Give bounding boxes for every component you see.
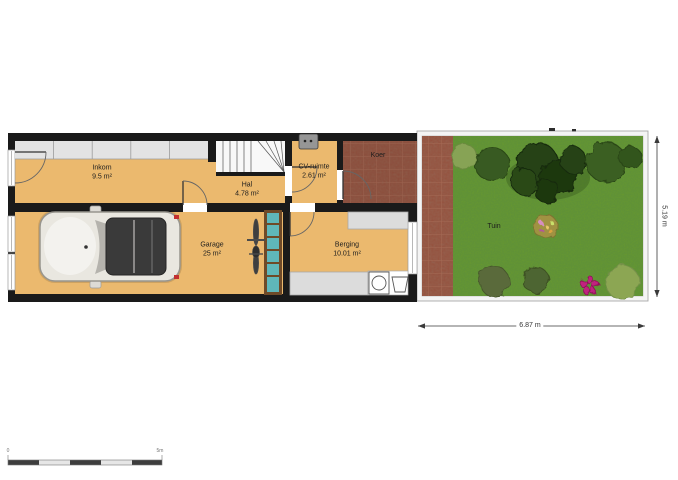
bush-olive-mid [523, 267, 549, 293]
room-name-berging: Berging [333, 242, 361, 251]
bush-olive-left [479, 266, 509, 296]
room-label-garage: Garage 25 m² [200, 242, 223, 259]
dimension-label-depth: 5.19 m [659, 203, 668, 228]
room-name-hal: Hal [235, 182, 259, 191]
room-name-tuin: Tuin [487, 223, 500, 232]
room-label-cv: CV-ruimte 2.61 m² [298, 164, 329, 181]
building [8, 133, 417, 302]
floor-plan-canvas: Inkom 9.5 m² Hal 4.78 m² CV-ruimte 2.61 … [0, 0, 678, 480]
room-label-berging: Berging 10.01 m² [333, 242, 361, 259]
washing-machine-icon [369, 272, 389, 294]
car-mirror-bottom [90, 281, 101, 288]
boiler-unit [299, 134, 318, 149]
fence-mark-2 [572, 129, 576, 131]
scale-label-end: 5m [157, 449, 164, 454]
scale-label-start: 0 [7, 449, 10, 454]
room-name-cv: CV-ruimte [298, 164, 329, 173]
car-taillight-top [174, 215, 179, 219]
room-name-koer: Koer [371, 152, 386, 161]
scale-bar [8, 455, 162, 465]
counter-top [348, 212, 408, 229]
room-name-inkom: Inkom [92, 165, 112, 174]
fence-mark-1 [549, 128, 555, 131]
door-gap-garage [183, 203, 207, 212]
room-label-koer: Koer [371, 152, 386, 161]
car-top-view [38, 206, 182, 288]
room-label-tuin: Tuin [487, 223, 500, 232]
room-area-garage: 25 m² [200, 250, 223, 259]
room-area-hal: 4.78 m² [235, 190, 259, 199]
flower-bed [534, 215, 558, 239]
door-gap-cv [285, 166, 292, 196]
bush-light-bottom-right [605, 265, 639, 299]
window-berging [408, 222, 417, 274]
laundry-basket-icon [392, 277, 408, 292]
door-gap-berging [290, 203, 315, 212]
window-garage-lower [8, 254, 15, 290]
room-area-berging: 10.01 m² [333, 250, 361, 259]
paving-texture [422, 136, 453, 296]
door-gap-koer [337, 170, 343, 200]
window-garage-upper [8, 216, 15, 252]
car-roof-glass [106, 218, 166, 275]
storage-rack [264, 210, 282, 295]
garden-plot [417, 128, 648, 301]
room-area-cv: 2.61 m² [298, 172, 329, 181]
room-name-garage: Garage [200, 242, 223, 251]
staircase [216, 141, 285, 172]
bush-light-top [451, 144, 477, 170]
bush-dark-left [475, 147, 509, 181]
floorplan-svg [0, 0, 678, 480]
room-label-hal: Hal 4.78 m² [235, 182, 259, 199]
koer-shade [343, 141, 417, 203]
dimension-label-width: 6.87 m [516, 322, 543, 331]
car-taillight-bottom [174, 275, 179, 279]
counter-bottom [290, 272, 368, 295]
room-label-inkom: Inkom 9.5 m² [92, 165, 112, 182]
entry-hatch-band [15, 141, 208, 159]
window-front-door [8, 150, 15, 186]
room-area-inkom: 9.5 m² [92, 173, 112, 182]
bush-dark-corner [619, 146, 641, 168]
